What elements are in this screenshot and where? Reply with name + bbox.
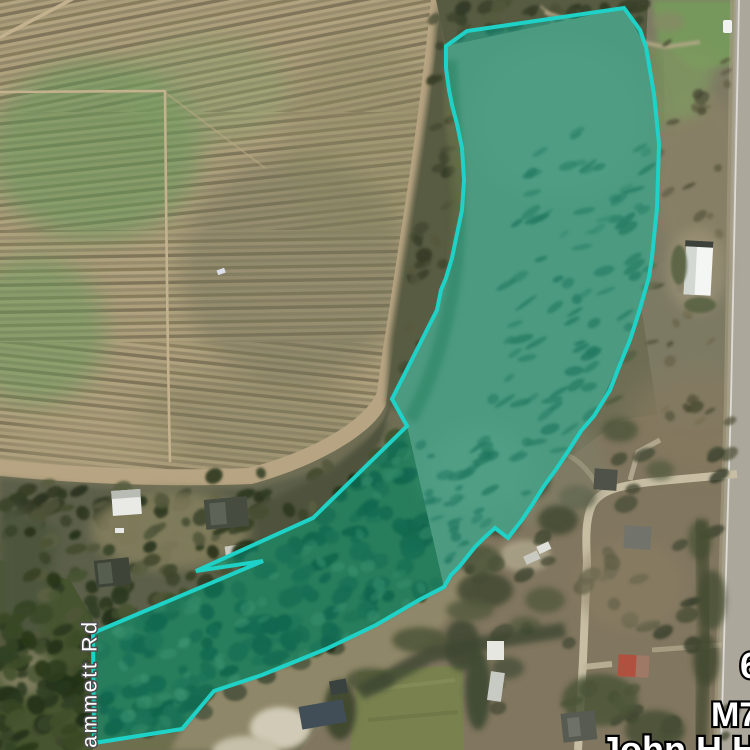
svg-text:Hammett Rd: Hammett Rd: [78, 619, 102, 750]
svg-text:61: 61: [740, 645, 750, 686]
svg-text:John H Hoo: John H Hoo: [600, 729, 750, 750]
